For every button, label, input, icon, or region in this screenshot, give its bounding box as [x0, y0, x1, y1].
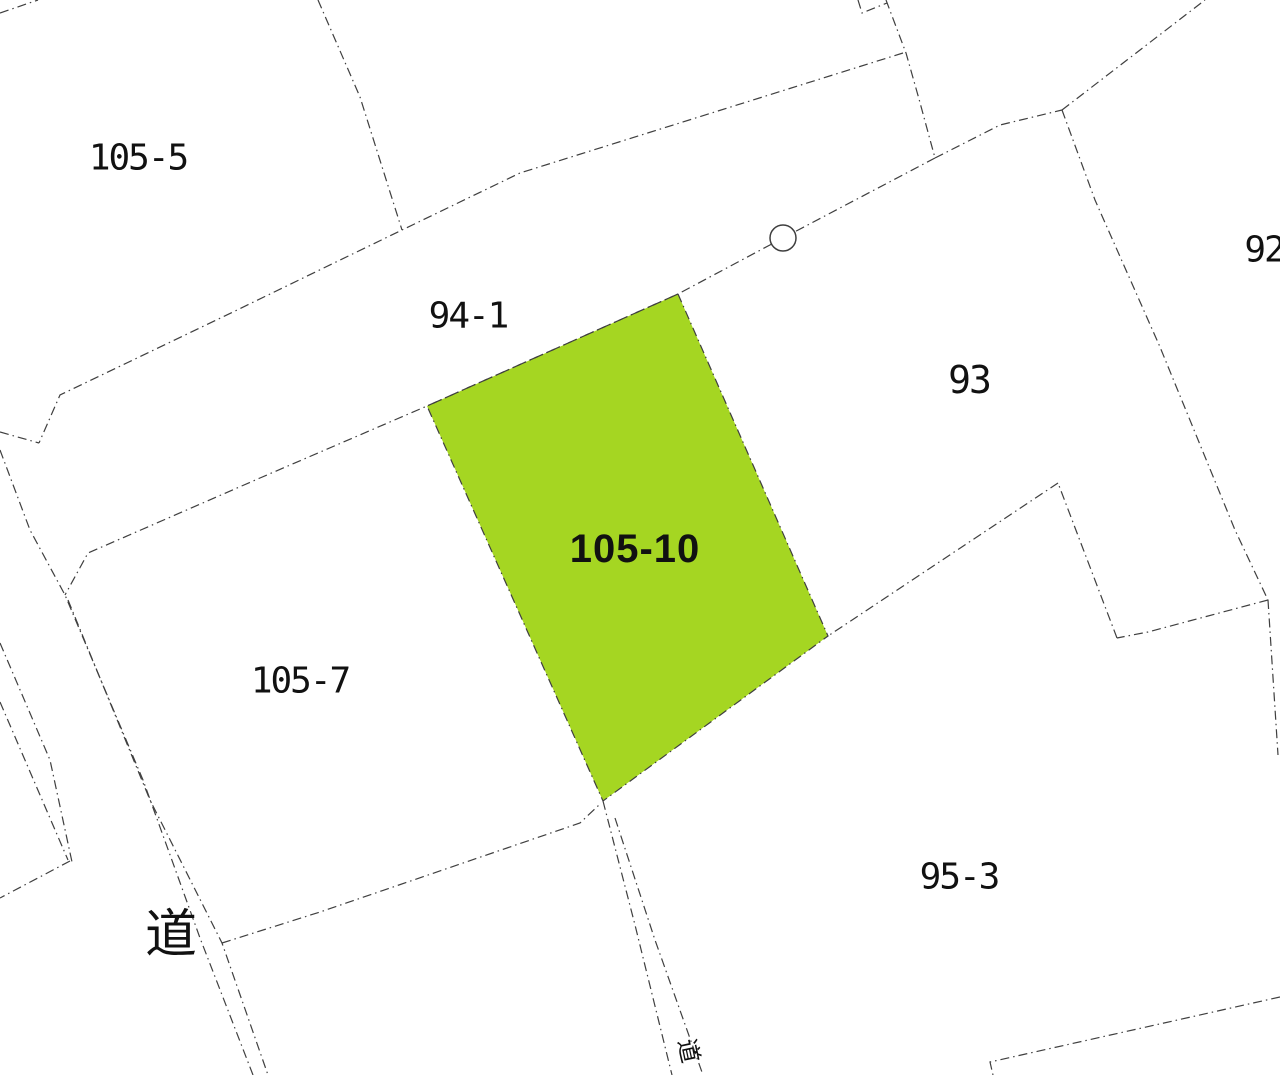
- boundary-top-notch: [858, 0, 887, 13]
- boundary-94-1-north: [39, 53, 903, 443]
- survey-point-circle-icon: [770, 225, 796, 251]
- road-label-main: 道: [145, 906, 197, 964]
- boundary-105-5-southwest: [0, 432, 39, 443]
- boundary-93-southeast: [1058, 483, 1117, 638]
- boundary-93-northeast: [1062, 0, 1205, 110]
- boundary-road-west-line: [0, 450, 253, 1075]
- parcel-label-94-1: 94-1: [429, 296, 508, 337]
- boundary-105-5-east: [318, 0, 402, 230]
- boundary-top-left-tick: [0, 0, 38, 13]
- parcel-label-93: 93: [948, 358, 990, 402]
- road-label-small-rotated: 道: [672, 1036, 703, 1065]
- boundary-far-left-sliver-c: [0, 861, 70, 898]
- boundary-93-92-divider: [1062, 110, 1268, 600]
- boundary-far-left-sliver-b: [0, 702, 68, 860]
- boundary-93-95-3-divider: [828, 483, 1058, 636]
- boundary-93-northwest: [935, 110, 1062, 158]
- boundary-95-3-southeast: [990, 997, 1280, 1075]
- boundary-road-east-line: [68, 600, 268, 1075]
- boundary-92-south-tail: [1268, 600, 1278, 755]
- boundary-narrow-road-west: [603, 801, 672, 1075]
- cadastral-map: 105-5 94-1 105-10 105-7 93 92 95-3 道 道: [0, 0, 1280, 1075]
- boundary-narrow-road-east: [615, 818, 703, 1075]
- boundary-92-southwest: [1117, 600, 1268, 638]
- boundary-105-7-south: [222, 804, 600, 943]
- parcel-label-105-10: 105-10: [570, 527, 701, 571]
- parcel-label-95-3: 95-3: [920, 857, 999, 898]
- parcel-label-105-7: 105-7: [251, 661, 349, 702]
- parcel-label-92: 92: [1244, 230, 1280, 271]
- parcel-label-105-5: 105-5: [89, 138, 187, 179]
- boundary-far-left-sliver-a: [0, 643, 72, 862]
- cadastral-map-svg: 105-5 94-1 105-10 105-7 93 92 95-3 道 道: [0, 0, 1280, 1075]
- boundary-top-center-vertical: [886, 0, 935, 158]
